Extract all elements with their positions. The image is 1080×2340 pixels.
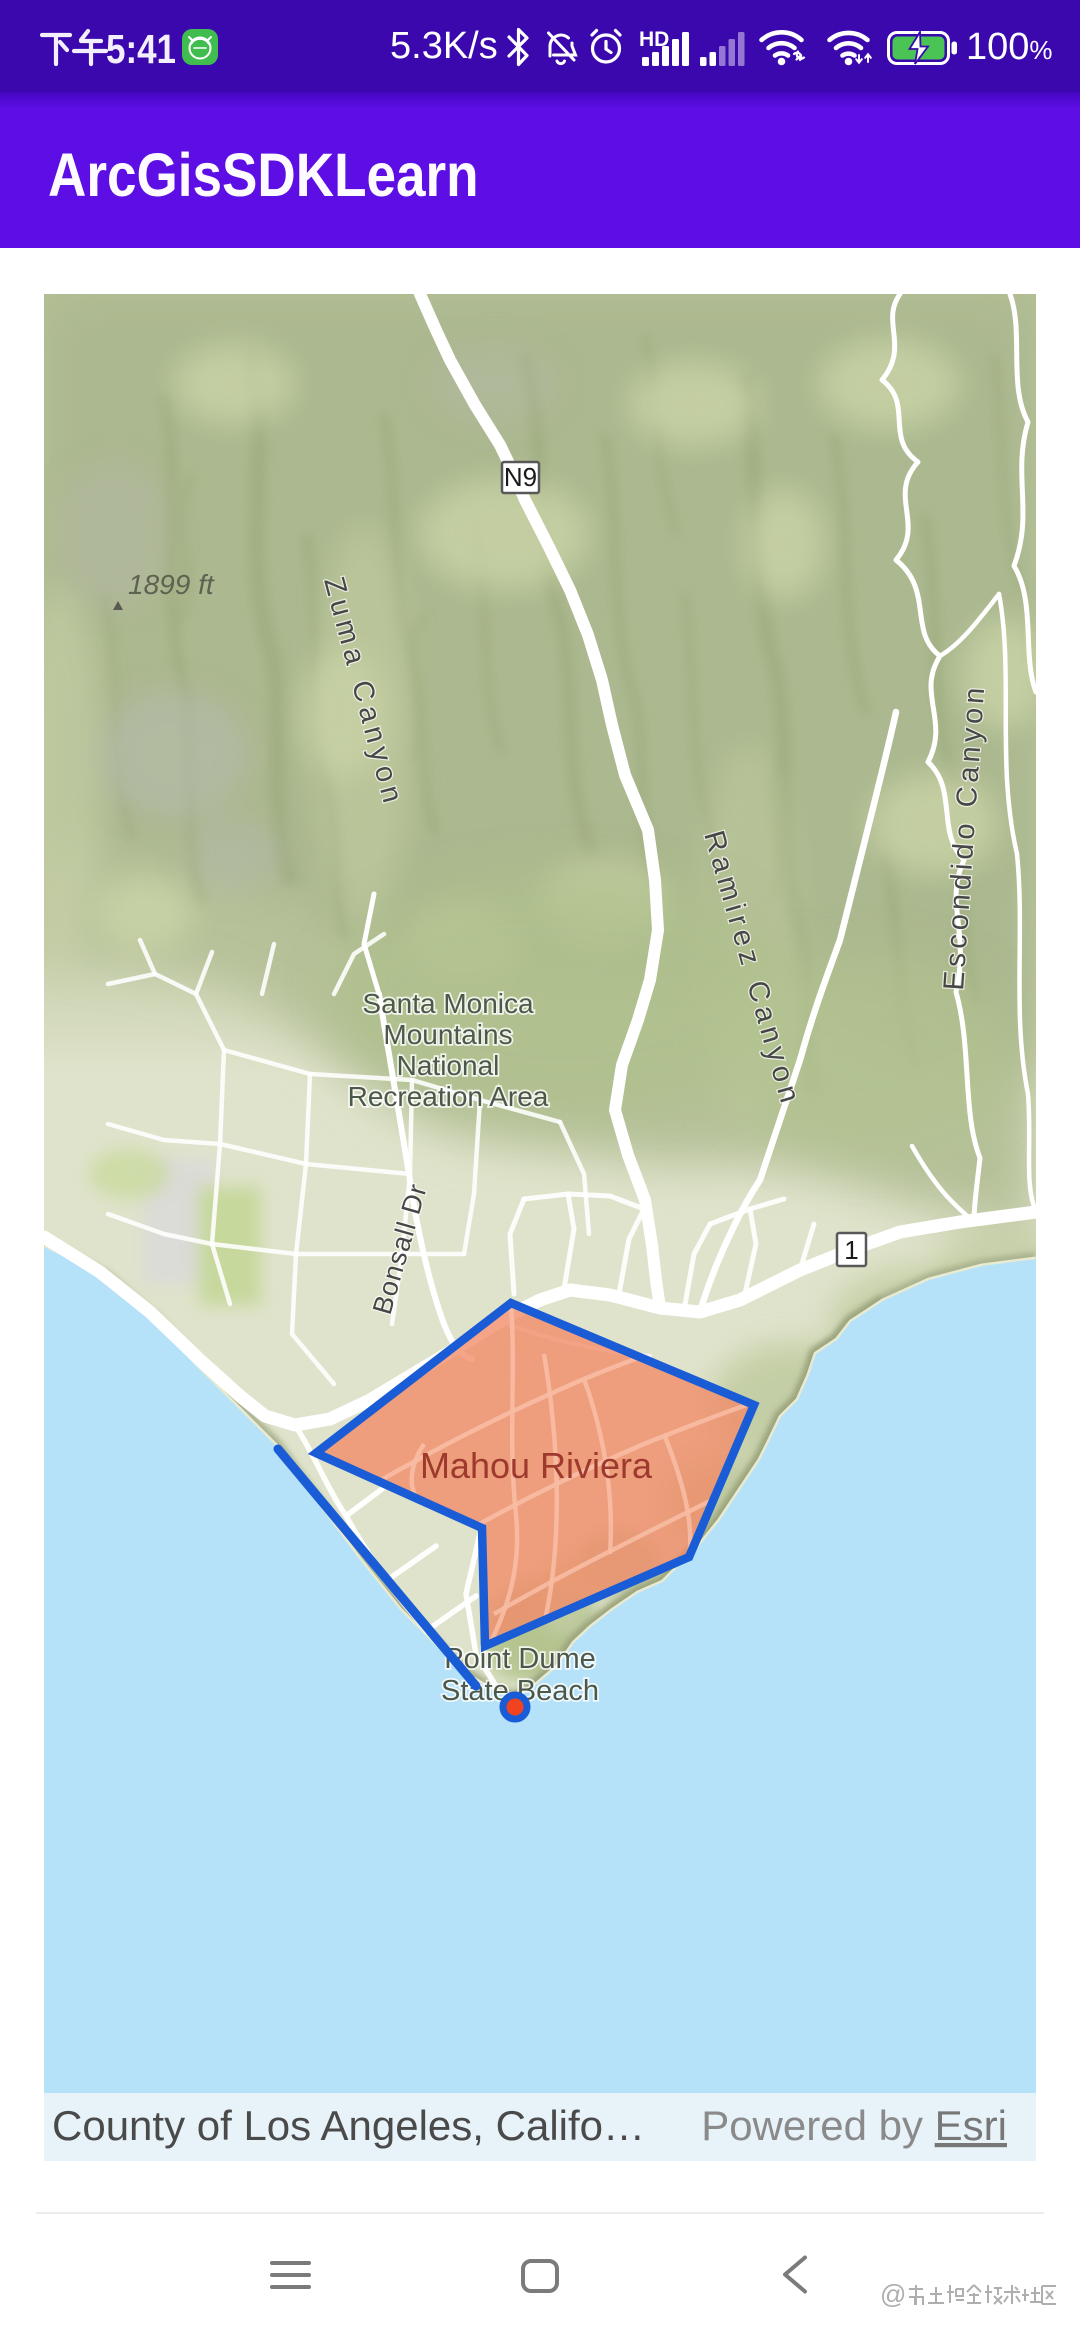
svg-text:Mahou Riviera: Mahou Riviera [420, 1445, 653, 1486]
svg-text:National: National [397, 1050, 500, 1081]
svg-text:Santa Monica: Santa Monica [362, 988, 534, 1019]
svg-text:County of Los Angeles, Califo…: County of Los Angeles, Califo… [52, 2102, 645, 2149]
svg-text:Powered by Esri: Powered by Esri [701, 2102, 1007, 2149]
svg-text:Recreation Area: Recreation Area [348, 1081, 549, 1112]
svg-text:N9: N9 [504, 462, 537, 492]
svg-text:1: 1 [844, 1235, 858, 1265]
svg-text:1899 ft: 1899 ft [128, 569, 215, 600]
svg-text:@: @ [880, 2282, 906, 2309]
svg-text:Mountains: Mountains [383, 1019, 512, 1050]
svg-text:5:41: 5:41 [106, 26, 176, 72]
